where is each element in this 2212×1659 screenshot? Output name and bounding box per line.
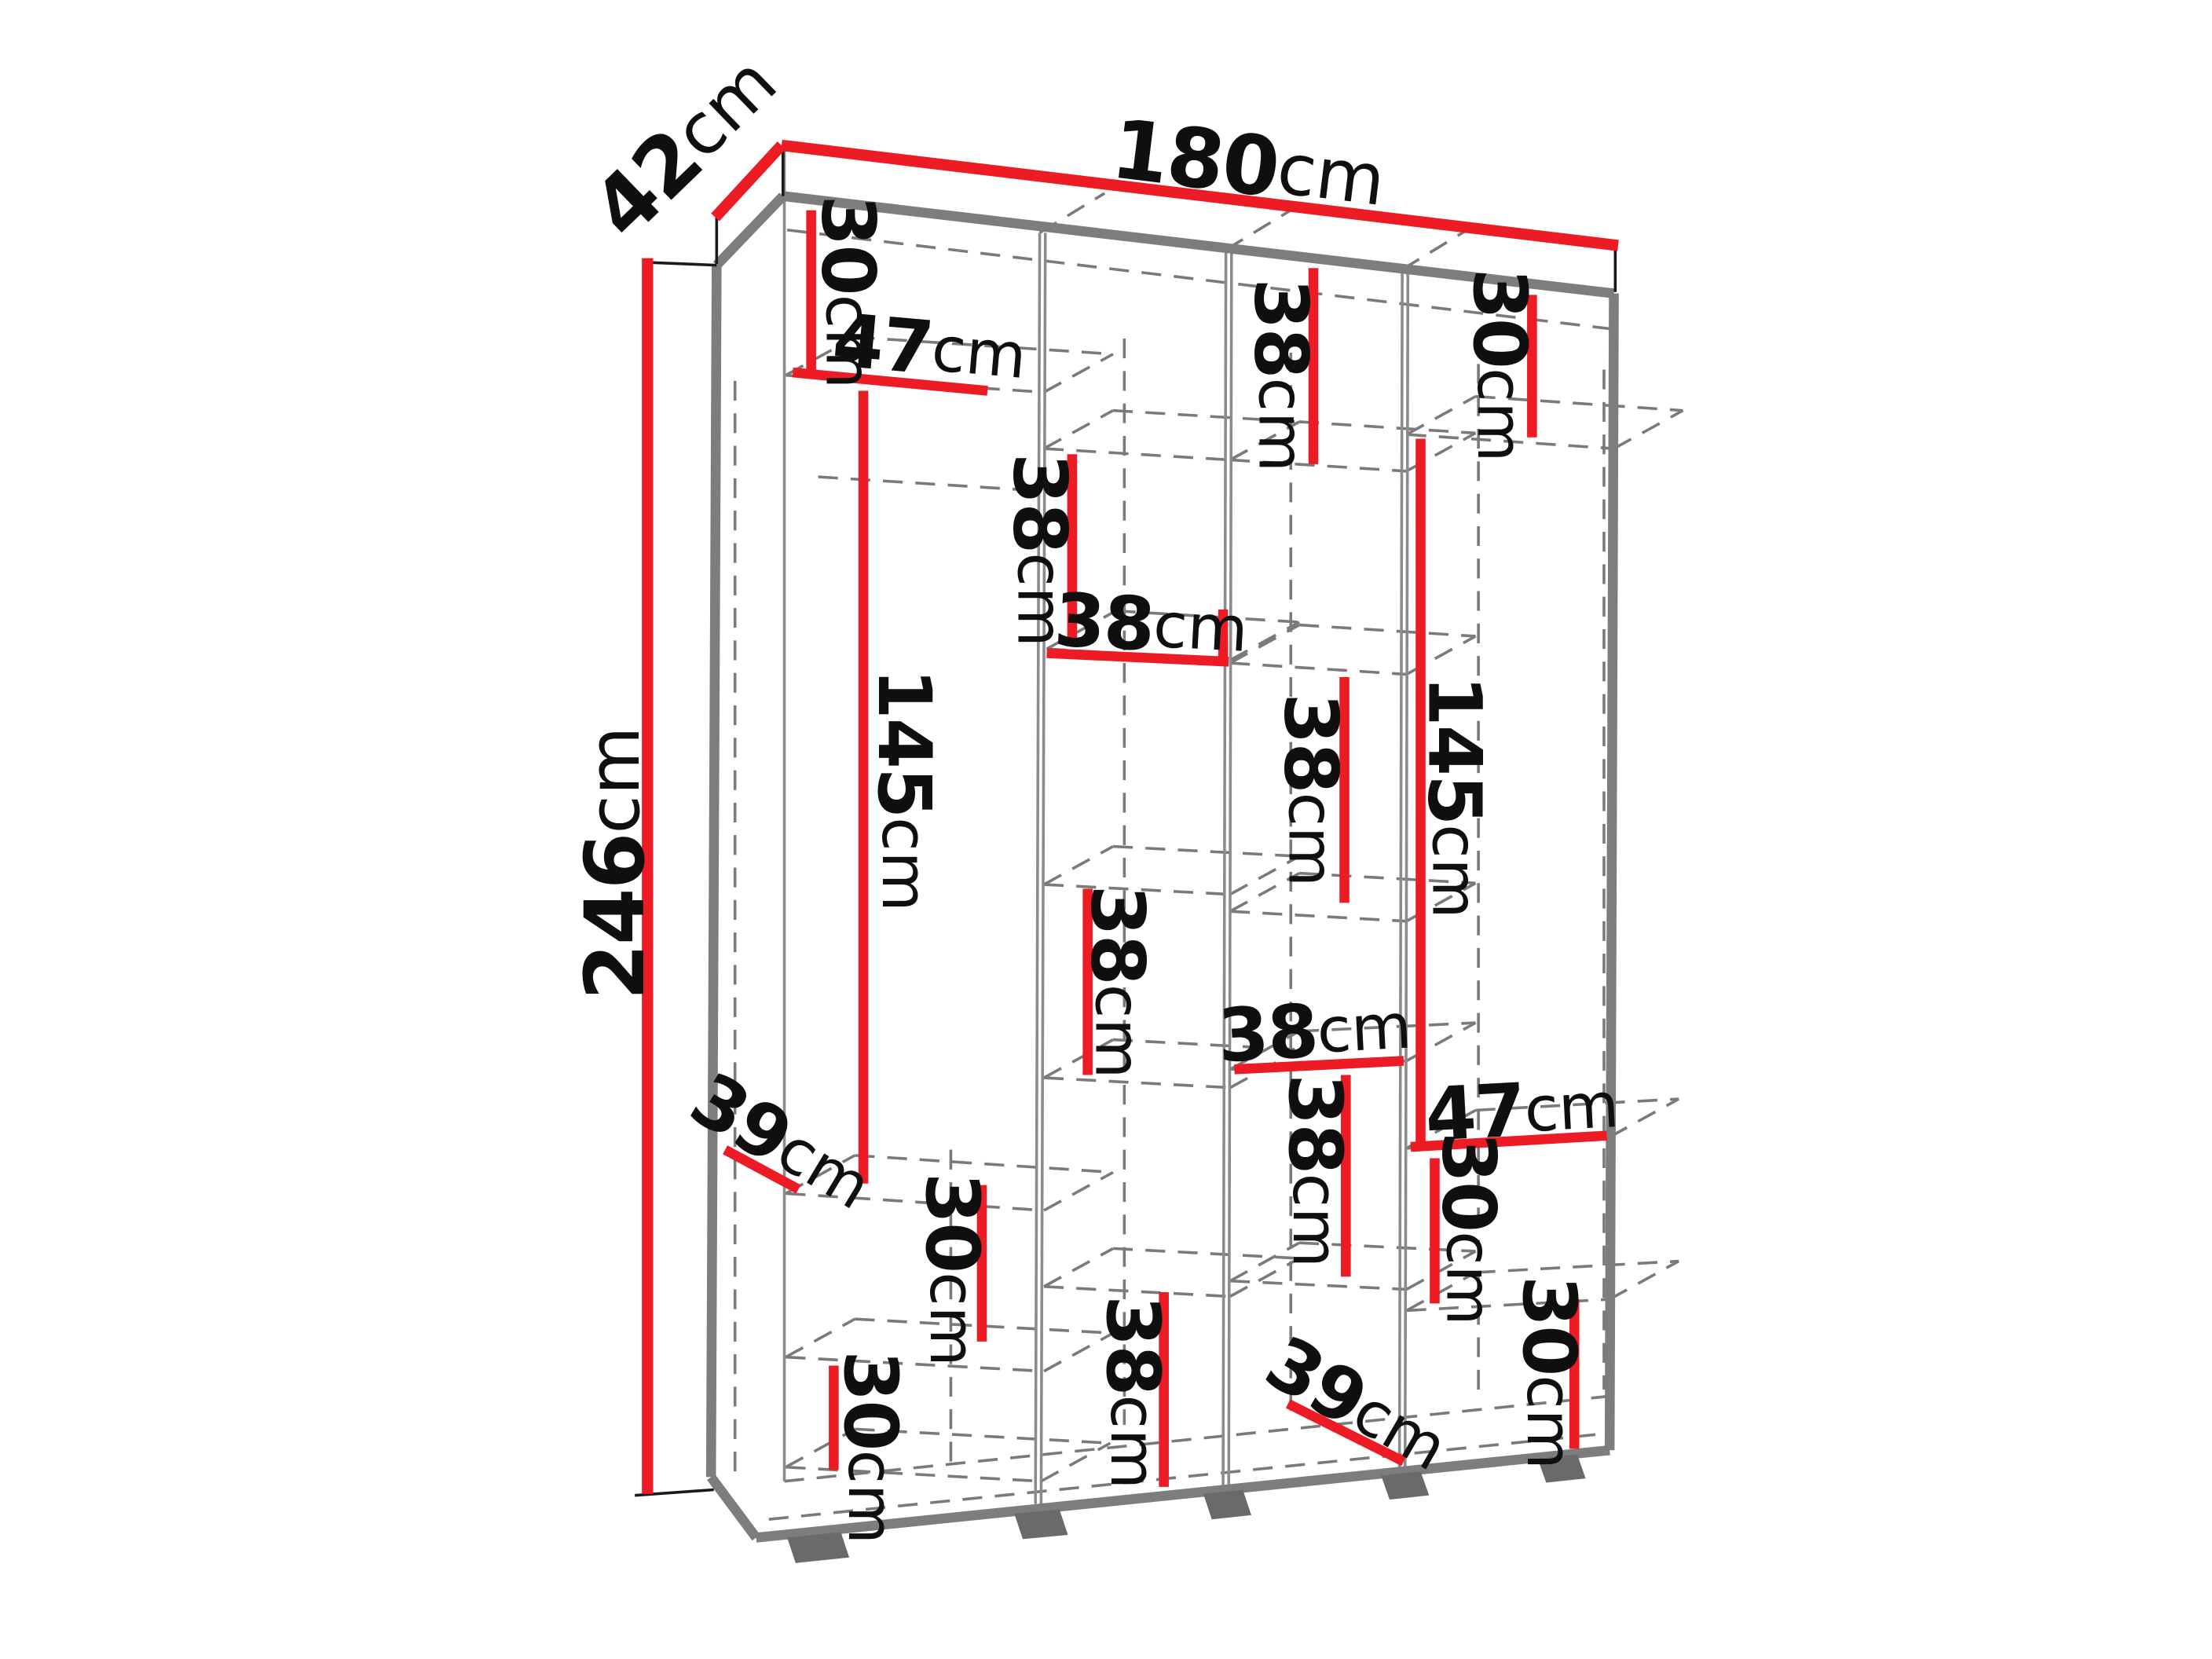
shelf-side-line [1044,411,1113,449]
shelf-front-line [1044,1078,1230,1088]
shelf-back-line [855,1155,1113,1173]
shelf-side-line [1610,1262,1679,1299]
dimension-unit: cm [1419,824,1491,918]
dimension-label-s1-mid-height: 145cm [862,668,947,912]
dimension-label-s1-cube-height: 30cm [910,1173,995,1367]
dimension-label-s4-top-height: 30cm [1457,269,1543,463]
dimension-unit: cm [1081,984,1153,1079]
dimension-value: 246 [567,834,663,1001]
dimension-unit: cm [1274,793,1346,887]
dimension-unit: cm [574,727,656,834]
dimension-label-s2-mid-height: 38cm [1075,885,1160,1079]
dimension-label-overall-height: 246cm [567,727,663,1001]
dimension-unit: cm [1245,378,1317,472]
dimension-label-s3-depth: 39cm [1252,1320,1463,1491]
wardrobe-dimension-diagram: 180cm42cm246cm30cm47cm145cm39cm30cm30cm3… [0,0,2212,1659]
dimension-unit: cm [1273,128,1389,222]
divider-line [1400,269,1403,1473]
dimension-value: 38 [997,453,1082,552]
carcass-edge [711,1477,756,1537]
divider-line [1035,233,1039,1503]
dimension-value: 30 [1426,1132,1511,1231]
dimension-value: 38 [1090,1295,1176,1394]
shelf-back-line [1113,847,1299,857]
divider-line [1229,250,1232,1491]
dimension-unit: cm [1522,1069,1621,1146]
dimension-label-s4-mid-height: 145cm [1412,676,1497,919]
dimension-value: 145 [1412,676,1497,825]
dimension-value: 30 [805,195,891,294]
shelf-side-line [1044,847,1113,884]
foot [1203,1489,1251,1519]
dimension-value: 38 [1052,577,1155,668]
dimension-unit: cm [834,1450,906,1544]
shelf-side-line [1044,1172,1113,1210]
dimension-value: 30 [910,1173,995,1272]
dimension-label-s3-mid-height: 38cm [1268,693,1353,887]
dimension-value: 38 [1075,885,1160,984]
dimension-unit: cm [928,313,1029,393]
dimension-value: 30 [828,1350,914,1449]
divider-line [1405,269,1408,1473]
dimension-label-overall-depth: 42cm [573,36,797,257]
dimension-label-s4-lower-height: 30cm [1426,1132,1511,1326]
dimension-label-overall-width: 180cm [1107,101,1390,229]
hidden-edge-line [1402,230,1467,269]
shelf-front-line [1230,911,1406,921]
dimension-value: 38 [1216,988,1320,1079]
extension-line [647,262,716,266]
hidden-edge-line [1226,211,1291,250]
shelf-front-line [1230,663,1406,674]
dimension-label-s2-width: 38cm [1052,577,1250,673]
divider-line [1223,250,1226,1491]
divider-line [1041,233,1045,1503]
shelf-side-line [1044,354,1113,392]
shelf-side-line [1614,411,1683,449]
dimension-label-s4-bottom-height: 30cm [1506,1276,1591,1470]
dimension-unit: cm [1463,368,1536,462]
shelf-side-line [1044,1248,1113,1286]
dimension-value: 38 [1238,278,1324,377]
dimension-value: 30 [1506,1276,1591,1375]
shelf-front-line [786,1357,1044,1372]
dimension-value: 38 [1268,693,1353,792]
shelf-back-line [1299,422,1475,433]
dimension-value: 47 [829,298,936,392]
dimension-value: 30 [1457,269,1543,368]
dimension-unit: cm [1279,1174,1351,1268]
dimension-unit: cm [1315,990,1413,1067]
dimension-unit: cm [1152,589,1250,666]
dimension-unit: cm [868,817,940,911]
shelf-front-line [1230,1281,1406,1290]
dimension-value: 38 [1272,1074,1357,1173]
carcass-edge [1610,294,1613,1451]
carcass-edge [711,266,716,1478]
dimension-label-s1-bottom-height: 30cm [828,1350,914,1544]
dimension-value: 180 [1107,101,1284,216]
dimension-label-s1-top-width: 47cm [829,298,1030,400]
shelf-back-line [1299,625,1475,636]
shelf-front-line [786,1467,1041,1481]
foot [1014,1510,1068,1540]
dimension-label-s3-lower-height: 38cm [1272,1074,1357,1268]
shelf-back-line [1476,1262,1679,1273]
dimension-unit: cm [1433,1231,1505,1325]
dimension-unit: cm [1513,1375,1585,1469]
dimension-unit: cm [1097,1395,1169,1489]
dimension-label-s3-top-height: 38cm [1238,278,1324,472]
dimension-unit: cm [916,1272,988,1366]
dimension-value: 145 [862,668,947,818]
dimension-label-s2-bottom-height: 38cm [1090,1295,1176,1489]
